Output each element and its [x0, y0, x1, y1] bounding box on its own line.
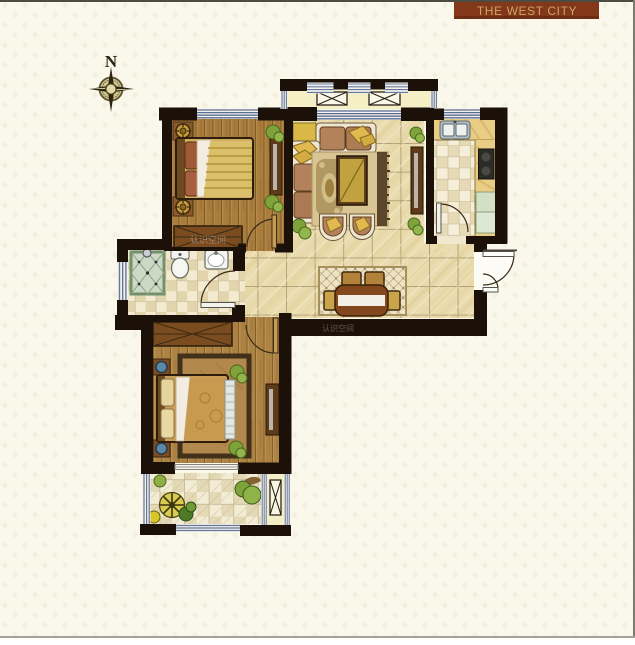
svg-text:THE WEST CITY: THE WEST CITY [477, 4, 577, 18]
svg-text:N: N [105, 52, 118, 71]
svg-text:认识空间: 认识空间 [190, 234, 226, 245]
svg-text:认识空间: 认识空间 [322, 323, 354, 333]
